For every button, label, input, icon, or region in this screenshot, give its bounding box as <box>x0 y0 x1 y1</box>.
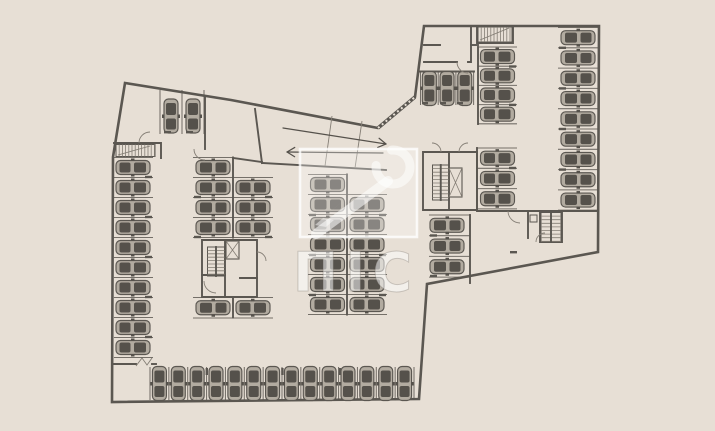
hatched-wall <box>378 97 415 128</box>
parking-floor-plan-image: ПІС <box>0 0 715 431</box>
watermark-letters: ПІС <box>293 241 419 304</box>
watermark: ПІС <box>293 149 419 304</box>
parking-floor-plan: ПІС <box>0 0 715 431</box>
